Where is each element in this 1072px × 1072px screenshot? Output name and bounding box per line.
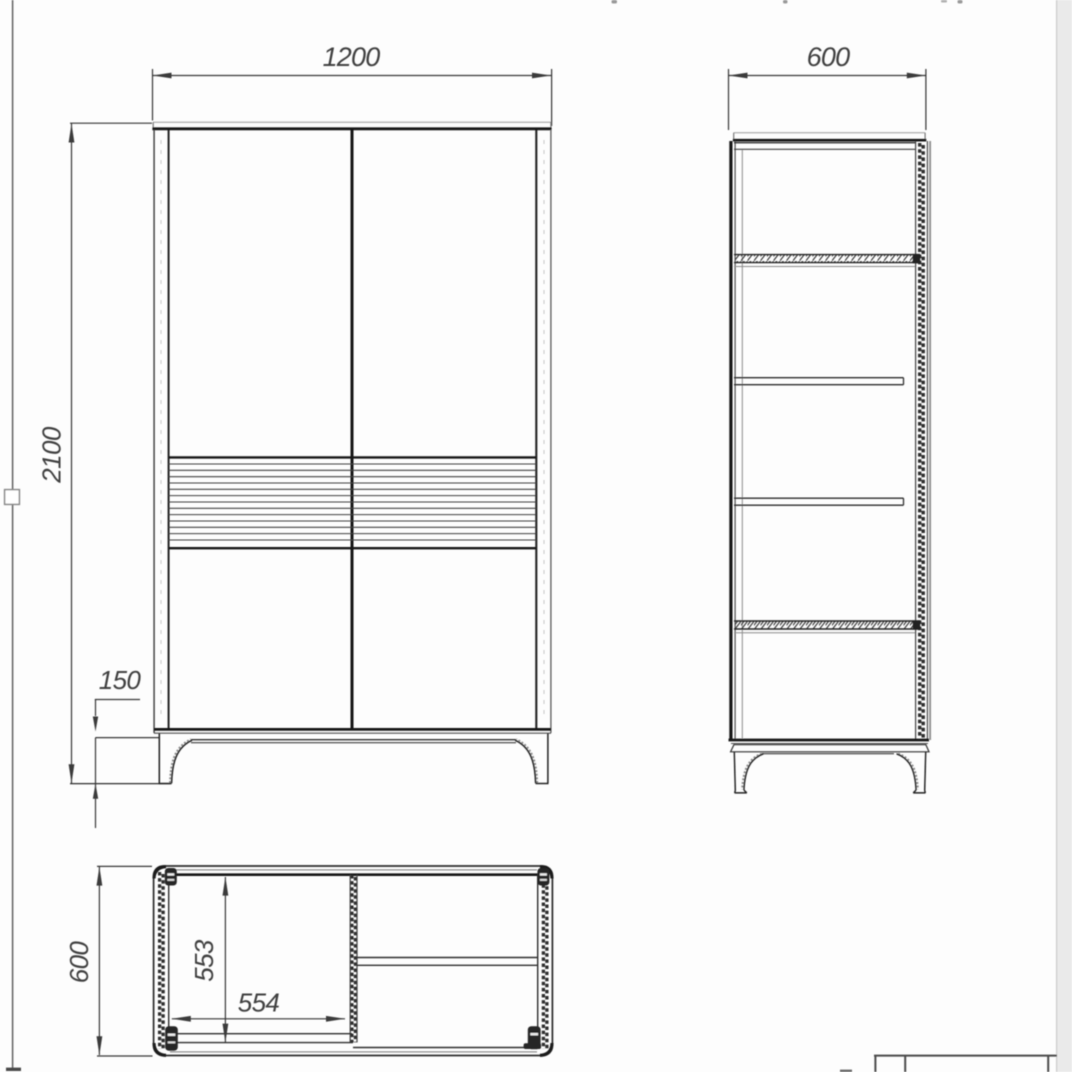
svg-text:600: 600 [64,941,94,984]
svg-text:150: 150 [99,665,142,695]
svg-text:1200: 1200 [323,42,381,72]
svg-text:600: 600 [807,42,850,72]
svg-text:553: 553 [189,939,219,982]
svg-text:2100: 2100 [37,426,67,484]
svg-text:554: 554 [238,988,280,1018]
